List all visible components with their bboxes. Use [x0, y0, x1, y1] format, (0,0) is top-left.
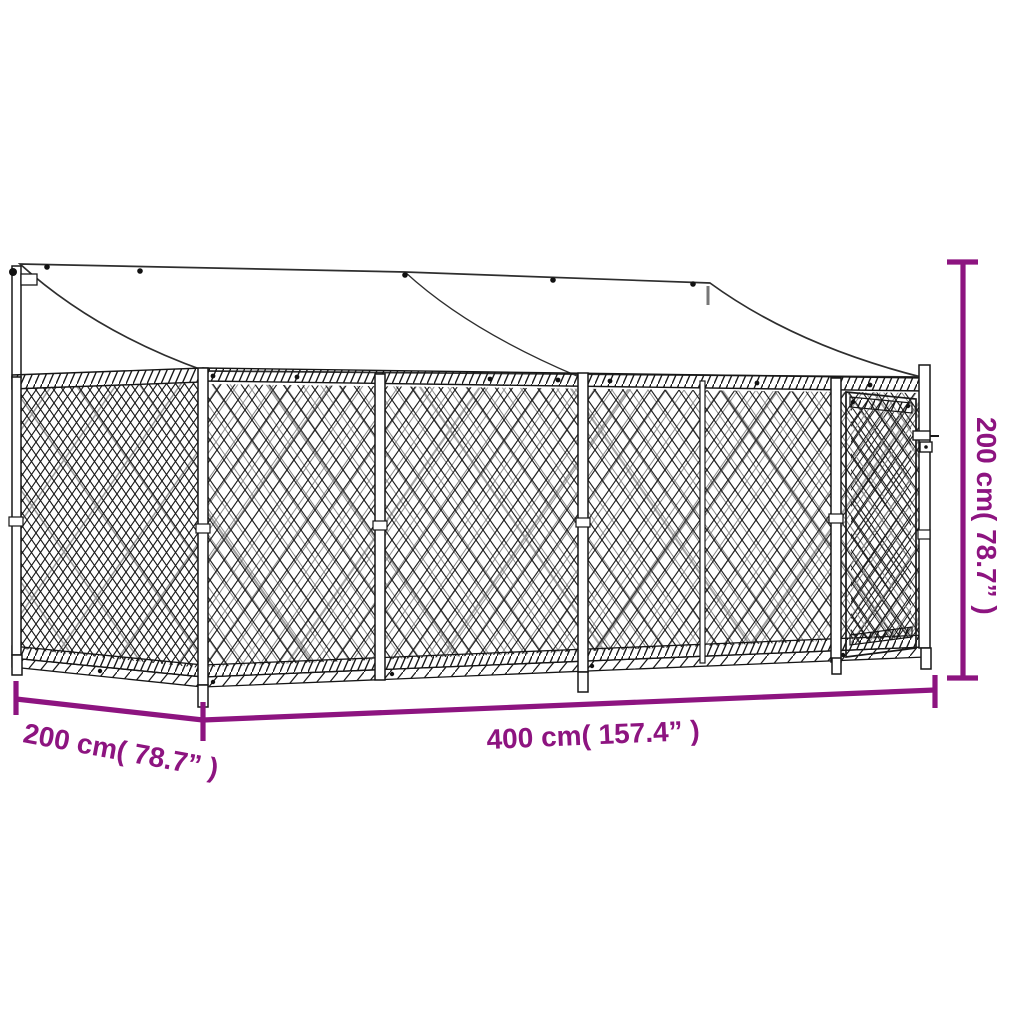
pole-grommet	[9, 268, 17, 276]
roof-support-pole	[9, 266, 37, 378]
dimension-width: 400 cm( 157.4” )	[203, 675, 935, 755]
foot-front-right	[921, 648, 931, 669]
pole	[12, 266, 21, 378]
dimension-height-label: 200 cm( 78.7” )	[971, 417, 1002, 615]
foot-back-left	[12, 655, 22, 675]
front-mesh-moire	[206, 384, 922, 667]
dimension-depth-label: 200 cm( 78.7” )	[21, 717, 221, 784]
depth-line	[16, 699, 203, 720]
dimension-depth: 200 cm( 78.7” )	[16, 681, 221, 784]
panel-divider	[700, 381, 705, 663]
foot-middle	[578, 672, 588, 692]
post-back-left	[12, 377, 21, 655]
side-mesh-moire	[15, 382, 201, 668]
front-fence	[98, 368, 925, 687]
product-dimension-diagram: 200 cm( 78.7” ) 400 cm( 157.4” ) 200 cm(…	[0, 0, 1024, 1024]
foot-door-frame	[832, 658, 841, 674]
dimension-width-label: 400 cm( 157.4” )	[486, 715, 700, 755]
door-mesh	[851, 408, 911, 645]
tarp-sheet	[20, 264, 921, 377]
width-line	[203, 690, 935, 720]
tarp-roof	[20, 264, 921, 377]
kennel-diagram-canvas: 200 cm( 78.7” ) 400 cm( 157.4” ) 200 cm(…	[0, 0, 1024, 1024]
side-panel	[12, 368, 203, 687]
post-front-right	[919, 365, 930, 648]
pole-bracket	[21, 274, 37, 285]
dimension-height: 200 cm( 78.7” )	[947, 262, 1002, 678]
